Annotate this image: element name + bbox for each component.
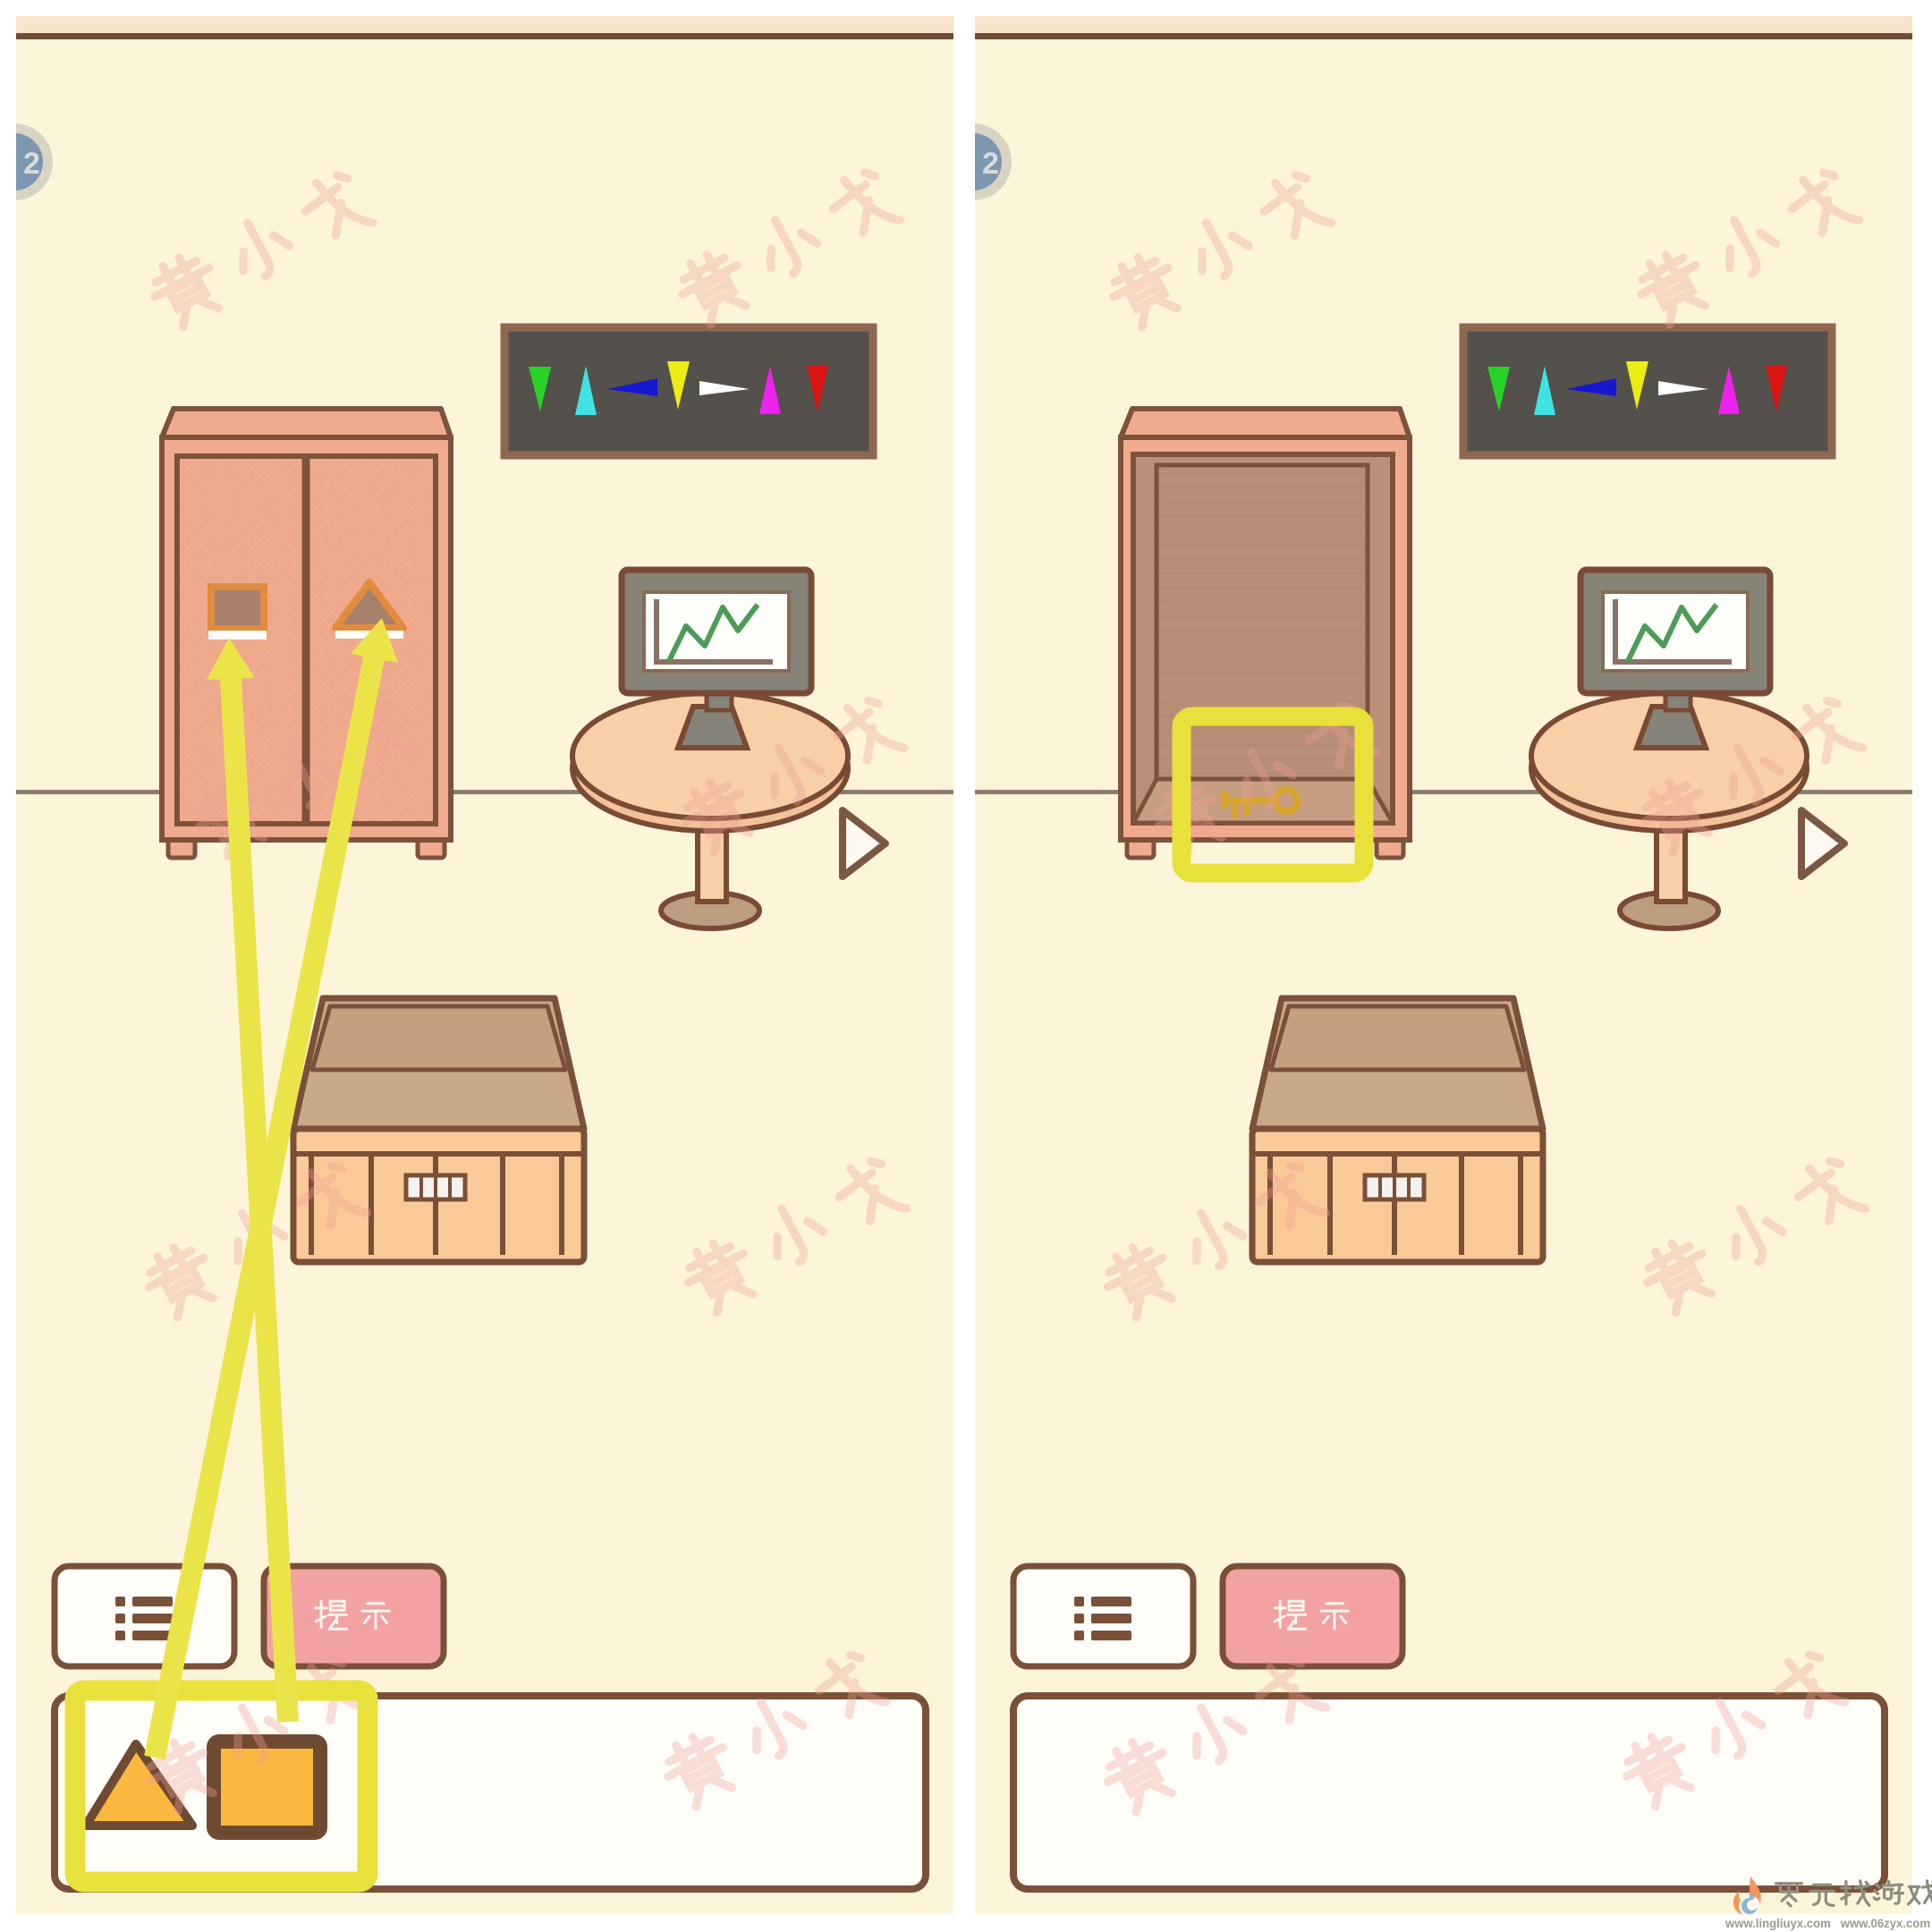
svg-text:www.lingliuyx.com www.06zyx.: www.lingliuyx.com www.06zyx.com xyxy=(1724,1916,1930,1930)
svg-text:2: 2 xyxy=(23,147,40,181)
svg-text:2: 2 xyxy=(982,147,999,181)
